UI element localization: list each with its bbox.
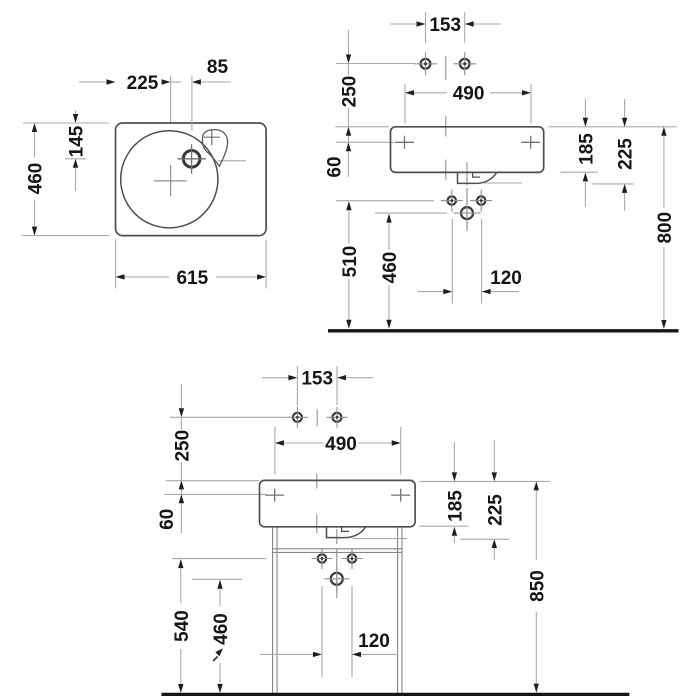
- svg-text:225: 225: [616, 138, 637, 170]
- svg-text:185: 185: [445, 490, 466, 522]
- svg-text:250: 250: [340, 76, 361, 108]
- svg-text:850: 850: [527, 570, 548, 602]
- svg-text:145: 145: [66, 125, 87, 157]
- svg-text:225: 225: [127, 73, 159, 94]
- svg-text:120: 120: [358, 631, 390, 652]
- svg-text:490: 490: [325, 434, 357, 455]
- svg-text:460: 460: [26, 163, 47, 195]
- svg-text:250: 250: [172, 430, 193, 462]
- svg-text:490: 490: [453, 84, 485, 105]
- svg-text:85: 85: [207, 57, 229, 78]
- svg-text:153: 153: [429, 15, 461, 36]
- svg-text:225: 225: [485, 494, 506, 526]
- svg-text:153: 153: [301, 369, 333, 390]
- svg-text:800: 800: [655, 212, 676, 244]
- svg-text:120: 120: [490, 268, 522, 289]
- svg-text:510: 510: [340, 246, 361, 278]
- svg-text:615: 615: [176, 268, 208, 289]
- svg-text:460: 460: [211, 613, 232, 645]
- svg-text:460: 460: [380, 252, 401, 284]
- svg-text:60: 60: [325, 156, 346, 177]
- svg-text:60: 60: [157, 509, 178, 530]
- svg-text:540: 540: [172, 610, 193, 642]
- svg-text:185: 185: [576, 133, 597, 165]
